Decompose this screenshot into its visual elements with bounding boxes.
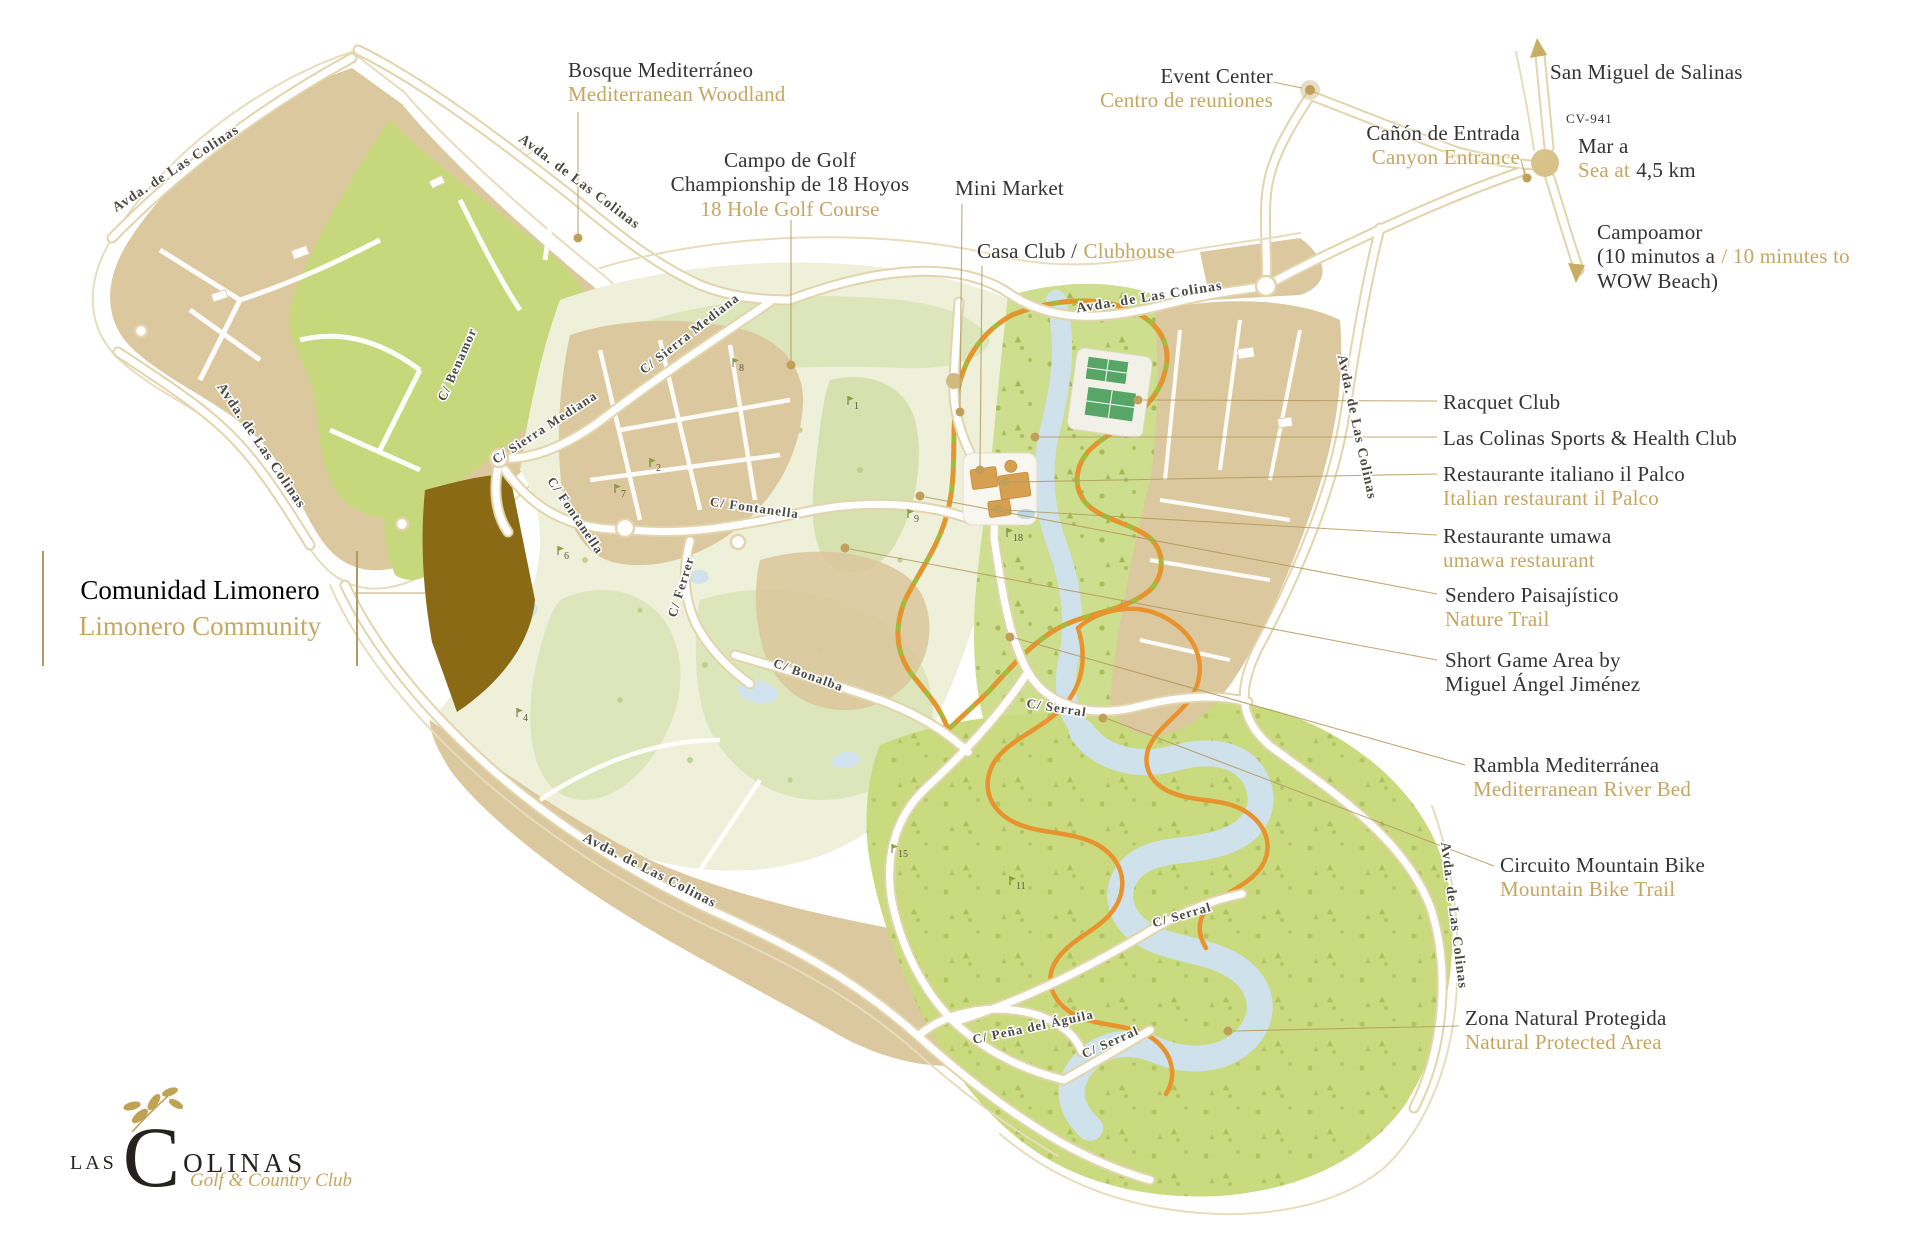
label-bosque-es: Bosque Mediterráneo [568, 58, 786, 82]
label-circuito-en: Mountain Bike Trail [1500, 877, 1705, 901]
label-bosque-mediterraneo: Bosque Mediterráneo Mediterranean Woodla… [568, 58, 786, 107]
label-limonero-en: Limonero Community [44, 608, 356, 644]
label-circuito-mountain-bike: Circuito Mountain Bike Mountain Bike Tra… [1500, 853, 1705, 902]
label-palco-es: Restaurante italiano il Palco [1443, 462, 1685, 486]
logo-initial-c: C [123, 1122, 180, 1193]
label-rambla-mediterranea: Rambla Mediterránea Mediterranean River … [1473, 753, 1691, 802]
label-short-game-line2: Miguel Ángel Jiménez [1445, 672, 1640, 696]
label-sea-distance: Mar a Sea at4,5 km [1578, 134, 1696, 183]
label-mar-es: Mar a [1578, 134, 1696, 158]
label-canyon-en: Canyon Entrance [1300, 145, 1520, 169]
label-racquet-club: Racquet Club [1443, 390, 1560, 414]
label-sports-health-club: Las Colinas Sports & Health Club [1443, 426, 1737, 450]
label-restaurante-umawa: Restaurante umawa umawa restaurant [1443, 524, 1611, 573]
label-sendero-paisajistico: Sendero Paisajístico Nature Trail [1445, 583, 1619, 632]
label-event-center-en: Centro de reuniones [1053, 88, 1273, 112]
label-palco-en: Italian restaurant il Palco [1443, 486, 1685, 510]
label-restaurante-il-palco: Restaurante italiano il Palco Italian re… [1443, 462, 1685, 511]
label-campoamor-line1: Campoamor [1597, 220, 1850, 244]
logo-tagline: Golf & Country Club [190, 1170, 352, 1192]
label-cv941-text: CV-941 [1566, 111, 1613, 126]
label-comunidad-limonero: Comunidad Limonero Limonero Community [42, 551, 358, 666]
hole-number: 11 [1016, 881, 1026, 892]
label-bosque-en: Mediterranean Woodland [568, 82, 786, 106]
hole-number: 8 [739, 363, 744, 374]
label-casa-club-es: Casa Club / [977, 239, 1077, 263]
label-campoamor-line2-es: (10 minutos a [1597, 244, 1715, 268]
hole-number: 6 [564, 551, 569, 562]
label-event-center: Event Center Centro de reuniones [1053, 64, 1273, 113]
label-limonero-es: Comunidad Limonero [44, 572, 356, 608]
label-casa-club: Casa Club /Clubhouse [977, 239, 1175, 263]
racquet-club-courts [1067, 347, 1154, 439]
label-campoamor: Campoamor (10 minutos a/ 10 minutes to W… [1597, 220, 1850, 293]
label-short-game-line1: Short Game Area by [1445, 648, 1640, 672]
label-racquet-text: Racquet Club [1443, 390, 1560, 414]
label-short-game-area: Short Game Area by Miguel Ángel Jiménez [1445, 648, 1640, 697]
label-umawa-es: Restaurante umawa [1443, 524, 1611, 548]
label-rambla-es: Rambla Mediterránea [1473, 753, 1691, 777]
hole-number: 1 [854, 401, 859, 412]
label-casa-club-en: Clubhouse [1084, 239, 1176, 263]
label-event-center-es: Event Center [1053, 64, 1273, 88]
label-san-miguel: San Miguel de Salinas [1550, 60, 1743, 84]
logo-word-las: LAS [70, 1152, 117, 1175]
label-campo-de-golf: Campo de Golf Championship de 18 Hoyos 1… [618, 148, 962, 221]
las-colinas-logo: LAS C OLINAS Golf & Country Club [70, 1086, 370, 1216]
label-san-miguel-text: San Miguel de Salinas [1550, 60, 1743, 84]
label-cv941: CV-941 [1566, 111, 1613, 126]
hole-number: 4 [523, 713, 528, 724]
label-rambla-en: Mediterranean River Bed [1473, 777, 1691, 801]
label-canyon-es: Cañón de Entrada [1300, 121, 1520, 145]
arrow-san-miguel [1530, 38, 1547, 58]
label-umawa-en: umawa restaurant [1443, 548, 1611, 572]
clubhouse-buildings [963, 453, 1037, 525]
label-sea-distance-value: 4,5 km [1636, 158, 1696, 182]
label-mini-market: Mini Market [955, 176, 1064, 200]
label-mini-market-text: Mini Market [955, 176, 1064, 200]
map-page: Avda. de Las Colinas Avda. de Las Colina… [0, 0, 1920, 1247]
label-sendero-es: Sendero Paisajístico [1445, 583, 1619, 607]
event-center-marker [1300, 80, 1320, 100]
hole-number: 15 [898, 849, 908, 860]
hole-number: 18 [1013, 533, 1023, 544]
label-campoamor-line3: WOW Beach) [1597, 269, 1850, 293]
label-zona-es: Zona Natural Protegida [1465, 1006, 1667, 1030]
label-canyon-entrance: Cañón de Entrada Canyon Entrance [1300, 121, 1520, 170]
label-sea-at-en: Sea at [1578, 158, 1630, 182]
label-campoamor-line2-en: / 10 minutes to [1721, 244, 1849, 268]
label-campo-line1: Campo de Golf [618, 148, 962, 172]
hole-number: 9 [914, 514, 919, 525]
label-campo-en: 18 Hole Golf Course [618, 197, 962, 221]
hole-number: 7 [621, 489, 626, 500]
label-zona-natural-protegida: Zona Natural Protegida Natural Protected… [1465, 1006, 1667, 1055]
label-campo-line2: Championship de 18 Hoyos [618, 172, 962, 196]
label-circuito-es: Circuito Mountain Bike [1500, 853, 1705, 877]
label-zona-en: Natural Protected Area [1465, 1030, 1667, 1054]
label-sports-text: Las Colinas Sports & Health Club [1443, 426, 1737, 450]
label-sendero-en: Nature Trail [1445, 607, 1619, 631]
hole-number: 2 [656, 463, 661, 474]
